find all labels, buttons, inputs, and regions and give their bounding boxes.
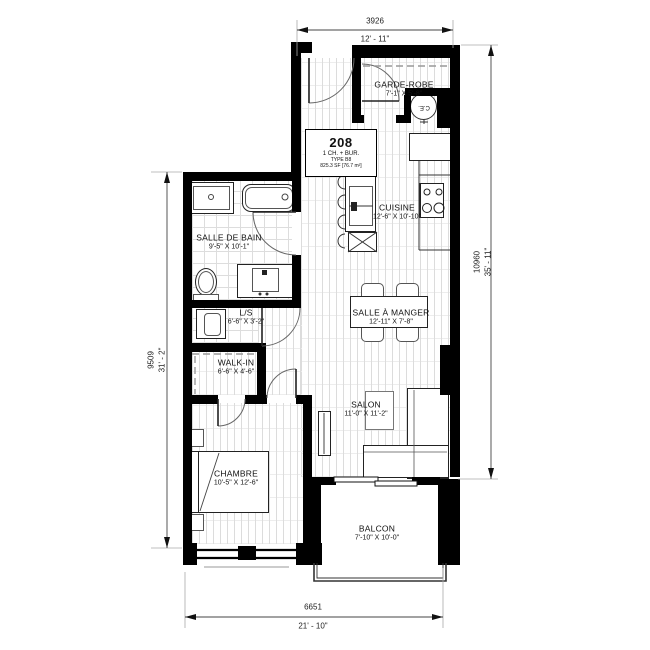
room-label-ls: L/S 6'-6" X 3'-2"	[228, 307, 264, 326]
dim-top-mm: 3926	[366, 17, 384, 26]
dim-left-ft: 31' - 2"	[158, 348, 167, 373]
extension-lines	[151, 20, 498, 628]
floor-plan: 208 1 CH. + BUR. TYPE B8 825.3 SF [76.7 …	[0, 0, 650, 650]
dim-right-mm: 10960	[473, 251, 482, 273]
stove-burners	[423, 189, 445, 213]
sliding-door	[334, 477, 417, 486]
unit-area: 825.3 SF [76.7 m²]	[320, 164, 361, 170]
dim-top-ft: 12' - 11"	[361, 35, 390, 44]
balcony-railing	[314, 563, 446, 581]
plan-linework	[0, 0, 650, 650]
room-label-chambre: CHAMBRE 10'-5" X 12'-6"	[214, 468, 258, 487]
water-heater-tick	[420, 119, 428, 124]
dim-left-mm: 9509	[147, 351, 156, 369]
unit-label-box: 208 1 CH. + BUR. TYPE B8 825.3 SF [76.7 …	[305, 129, 377, 177]
water-heater-label: C.E.	[418, 102, 430, 110]
unit-number: 208	[329, 136, 352, 151]
dimension-lines	[167, 30, 491, 617]
dim-bottom-mm: 6651	[304, 603, 322, 612]
window	[197, 550, 296, 567]
room-label-cuisine: CUISINE 12'-6" X 10'-10"	[373, 202, 421, 221]
room-label-salon: SALON 11'-0" X 11'-2"	[344, 399, 387, 418]
room-label-walk-in: WALK-IN 6'-6" X 4'-6"	[218, 357, 255, 376]
dimension-arrows	[164, 27, 494, 620]
room-label-balcon: BALCON 7'-10" X 10'-0"	[355, 523, 399, 542]
island-faucet	[351, 202, 357, 211]
dim-bottom-ft: 21' - 10"	[298, 622, 327, 631]
closet-rod-lines	[192, 66, 448, 394]
room-label-salle-de-bain: SALLE DE BAIN 9'-5" X 10'-1"	[196, 232, 261, 251]
island-details	[338, 175, 377, 252]
room-label-garde-robe: GARDE-ROBE 7'-1" X 5'-8"	[374, 79, 433, 98]
dim-right-ft: 35' - 11"	[484, 248, 493, 277]
room-label-salle-a-manger: SALLE À MANGER 12'-11" X 7'-8"	[353, 307, 430, 326]
